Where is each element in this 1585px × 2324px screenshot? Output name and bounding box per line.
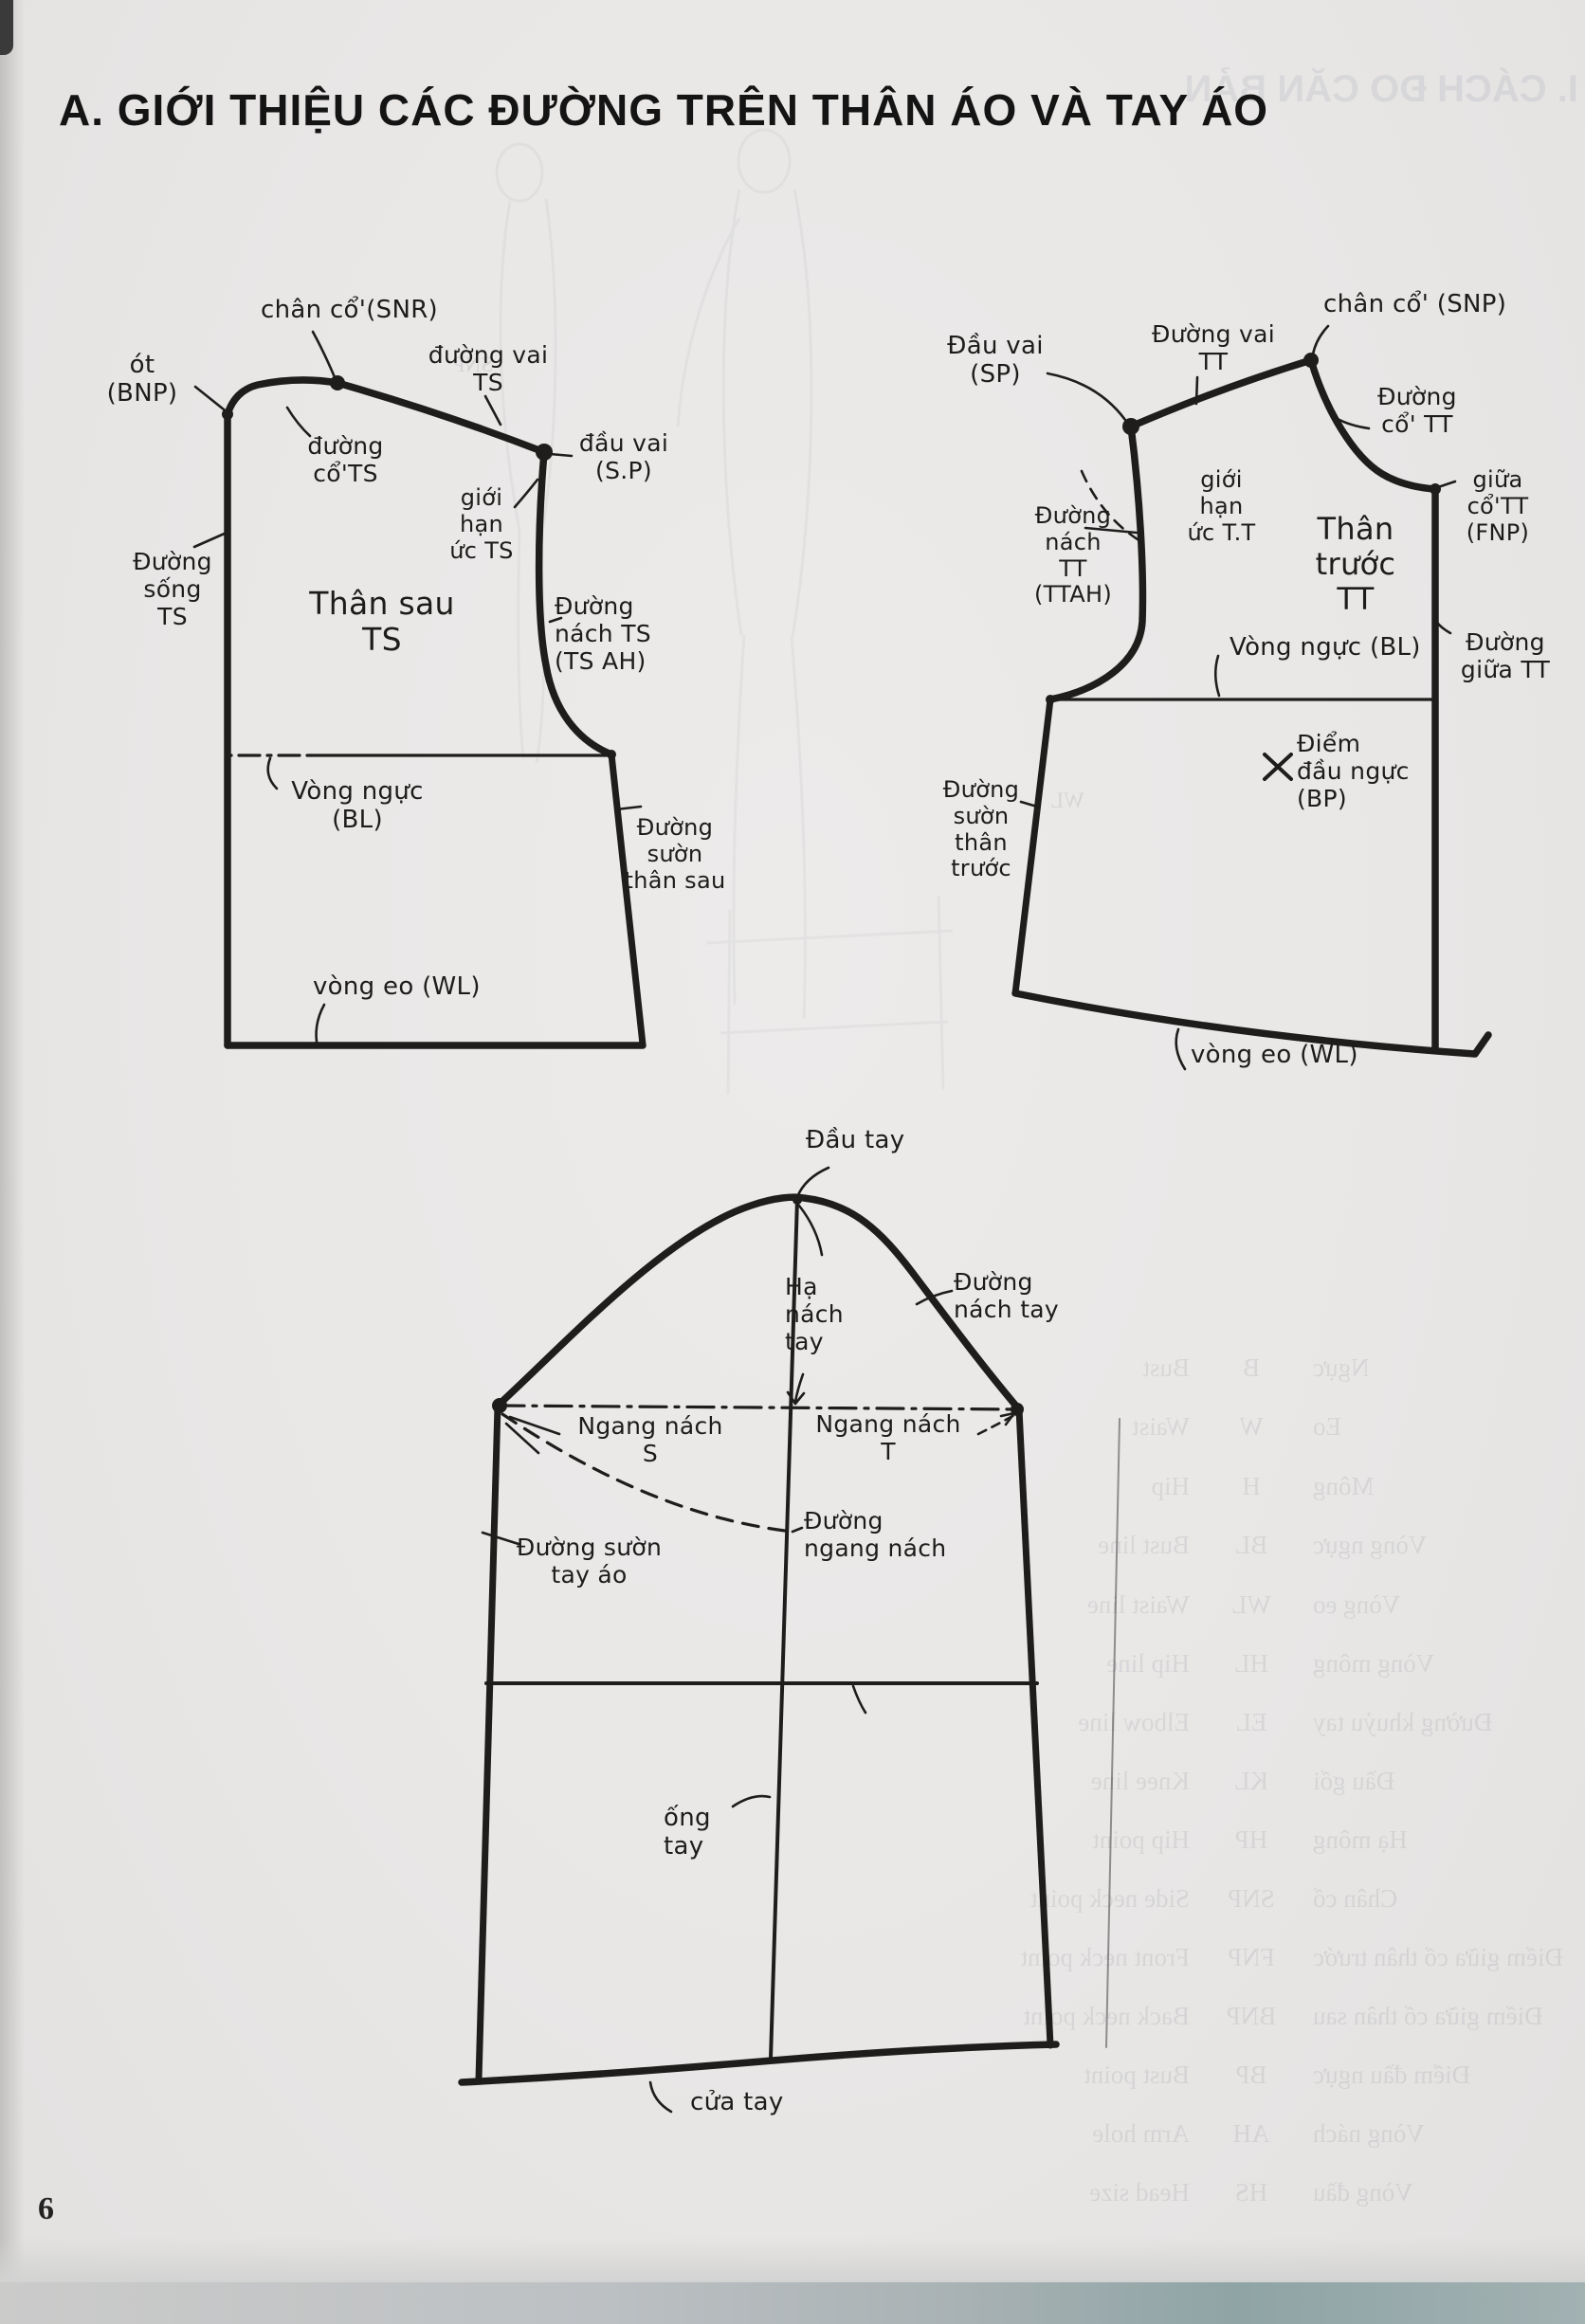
label-sleeve-biceps-s: Ngang nách S [565,1412,736,1467]
label-front-bustline: Vòng ngực (BL) [1230,633,1438,662]
label-sleeve-biceps-t: Ngang nách T [808,1410,969,1465]
front-bodice-outline [1015,353,1488,1054]
page-title: A. GIỚI THIỆU CÁC ĐƯỜNG TRÊN THÂN ÁO VÀ … [59,84,1481,136]
label-back-sideseam: Đường sườn thân sau [609,815,741,894]
sleeve-leader-lines [483,1168,1014,2112]
label-back-sideneck: chân cổ'(SNR) [261,296,488,324]
label-front-armholeline: Đường nách TT (TTAH) [997,503,1149,608]
label-front-bustpoint: Điểm đầu ngực (BP) [1297,730,1439,812]
label-front-sideseam: Đường sườn thân trước [929,777,1033,882]
label-back-bnp: ót (BNP) [81,351,204,408]
label-sleeve-sideseam: Đường sườn tay áo [506,1534,672,1589]
label-front-neckline: Đường cổ' TT [1365,383,1469,438]
label-sleeve-cap-top: Đầu tay [806,1126,938,1154]
label-back-sp: đầu vai (S.P) [576,429,671,484]
label-sleeve-cap-height: Hạ nách tay [785,1273,861,1355]
label-back-centerline: Đường sống TS [125,548,220,630]
label-sleeve-capline: Đường nách tay [954,1268,1091,1323]
label-sleeve-cuff: cửa tay [690,2088,813,2116]
label-front-shoulderline: Đường vai TT [1147,320,1280,375]
label-front-fnp: giữa cổ'TT (FNP) [1450,467,1545,546]
back-bodice-leader-lines [194,332,641,1047]
label-back-bustline: Vòng ngực (BL) [277,777,438,834]
label-front-chest-limit: giới hạn ức T.T [1172,467,1271,546]
label-front-centerline: Đường giữa TT [1434,628,1576,683]
label-sleeve-underarm: Đường ngang nách [804,1507,975,1562]
label-front-sideneck: chân cổ' (SNP) [1323,290,1541,318]
pattern-diagram-drawing [0,0,1585,2324]
label-sleeve-tube: ống tay [664,1804,739,1861]
label-back-piece-name: Thân sau TS [292,586,472,659]
label-front-piece-name: Thân trước TT [1275,512,1436,617]
label-back-waistline: vòng eo (WL) [313,972,521,1001]
scanned-page: I. CÁCH ĐO CĂN BẢN BustBNgựcWaistWEoHipH… [0,0,1585,2324]
label-front-waistline: vòng eo (WL) [1191,1041,1399,1069]
label-back-shoulderline: đường vai TS [417,341,559,396]
label-back-neckline: đường cổ'TS [296,432,395,487]
label-back-armholeline: Đường nách TS (TS AH) [555,592,706,675]
label-back-chest-limit: giới hạn ức TS [434,485,529,564]
label-front-sp: Đầu vai (SP) [938,332,1052,389]
page-number: 6 [38,2191,54,2227]
